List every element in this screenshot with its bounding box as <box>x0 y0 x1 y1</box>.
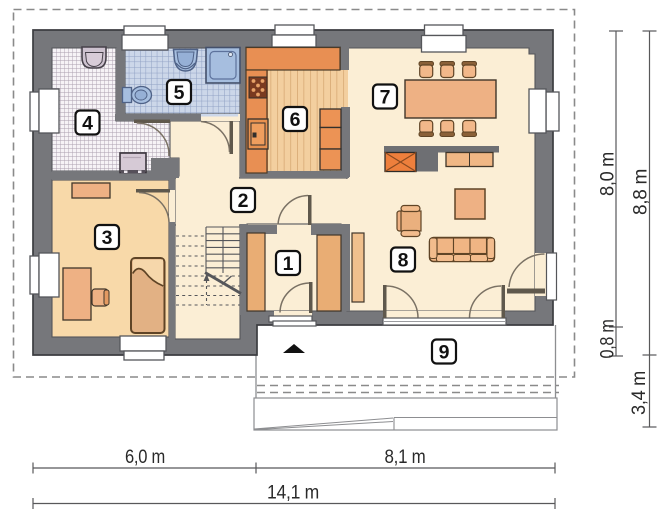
svg-text:8,8 m: 8,8 m <box>631 169 652 215</box>
svg-text:3: 3 <box>102 227 113 249</box>
svg-text:6,0 m: 6,0 m <box>125 447 165 468</box>
svg-text:8: 8 <box>398 250 409 272</box>
svg-text:1: 1 <box>283 253 294 275</box>
svg-text:2: 2 <box>238 190 249 212</box>
svg-text:0,8 m: 0,8 m <box>598 320 619 359</box>
svg-text:8,0 m: 8,0 m <box>598 152 619 196</box>
svg-text:9: 9 <box>439 342 450 364</box>
svg-text:6: 6 <box>290 109 301 131</box>
svg-text:8,1 m: 8,1 m <box>385 447 426 468</box>
svg-text:3,4 m: 3,4 m <box>629 371 650 415</box>
svg-text:5: 5 <box>174 82 185 104</box>
svg-text:14,1 m: 14,1 m <box>267 483 319 504</box>
svg-text:4: 4 <box>82 113 93 135</box>
svg-text:7: 7 <box>380 87 391 109</box>
